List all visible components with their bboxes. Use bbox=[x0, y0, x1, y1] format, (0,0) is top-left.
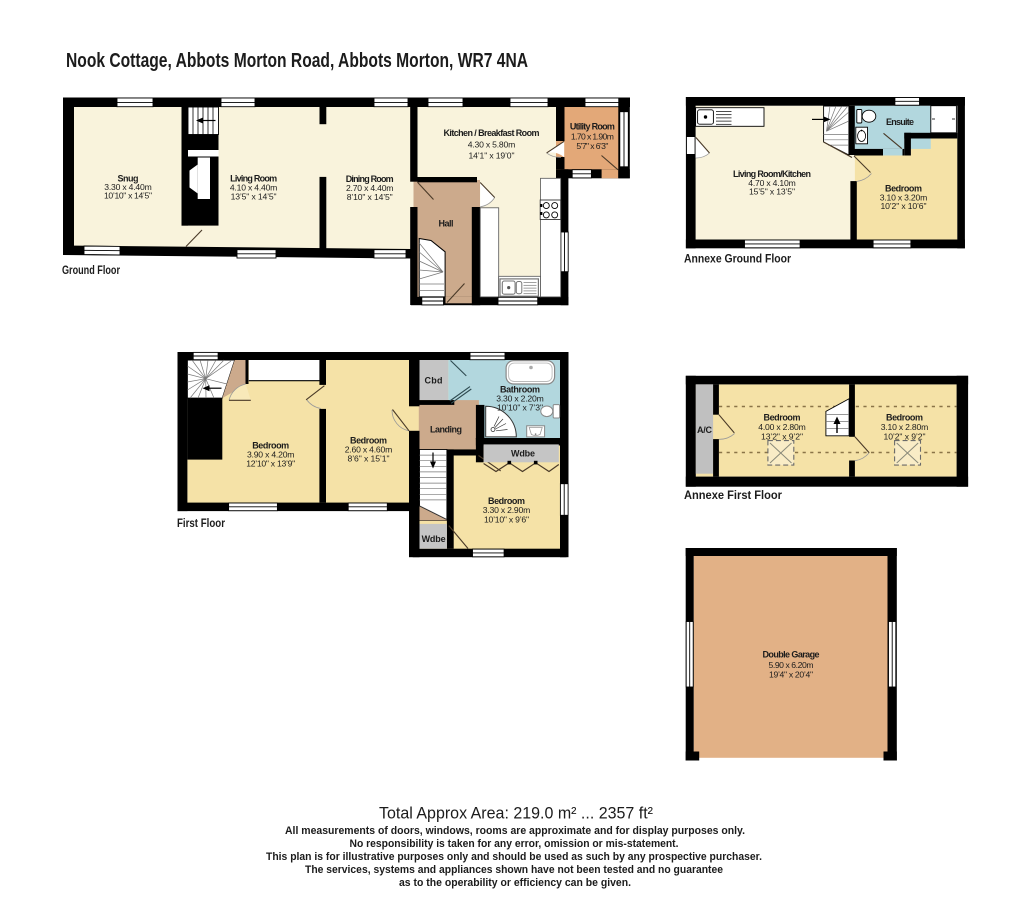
svg-text:19’4" x 20’4": 19’4" x 20’4" bbox=[769, 669, 813, 679]
svg-text:Cbd: Cbd bbox=[425, 376, 443, 386]
svg-text:3.10 x 2.80m: 3.10 x 2.80m bbox=[881, 422, 929, 432]
svg-text:10’2" x 10’6": 10’2" x 10’6" bbox=[881, 201, 927, 211]
svg-text:1.70 x 1.90m: 1.70 x 1.90m bbox=[571, 131, 614, 141]
svg-text:8’10" x 14’5": 8’10" x 14’5" bbox=[347, 192, 393, 202]
svg-text:8’6" x 15’1": 8’6" x 15’1" bbox=[348, 454, 390, 464]
svg-text:Wdbe: Wdbe bbox=[511, 448, 535, 458]
svg-text:Landing: Landing bbox=[430, 424, 462, 434]
svg-text:Ensuite: Ensuite bbox=[886, 117, 914, 127]
svg-text:15’5" x 13’5": 15’5" x 13’5" bbox=[749, 187, 795, 197]
svg-text:5’7" x 6’3": 5’7" x 6’3" bbox=[576, 141, 608, 151]
svg-text:The services, systems and appl: The services, systems and appliances sho… bbox=[305, 864, 723, 876]
svg-text:4.30 x 5.80m: 4.30 x 5.80m bbox=[468, 140, 516, 150]
svg-text:13’2" x 9’2": 13’2" x 9’2" bbox=[761, 432, 803, 442]
svg-text:as to the operability or effic: as to the operability or efficiency can … bbox=[399, 877, 631, 889]
svg-text:Hall: Hall bbox=[439, 219, 454, 229]
svg-text:10’10" x 9’6": 10’10" x 9’6" bbox=[484, 514, 529, 524]
svg-text:Ground Floor: Ground Floor bbox=[62, 265, 120, 277]
svg-text:10’10" x 14’5": 10’10" x 14’5" bbox=[104, 190, 152, 200]
svg-text:Utility Room: Utility Room bbox=[570, 122, 615, 132]
svg-text:Kitchen / Breakfast Room: Kitchen / Breakfast Room bbox=[444, 128, 540, 138]
svg-text:13’5" x 14’5": 13’5" x 14’5" bbox=[231, 192, 277, 202]
svg-text:Total Approx Area: 219.0 m² ..: Total Approx Area: 219.0 m² ... 2357 ft² bbox=[379, 804, 653, 823]
svg-text:Bedroom: Bedroom bbox=[764, 412, 801, 422]
svg-text:This plan is for illustrative: This plan is for illustrative purposes o… bbox=[266, 851, 762, 863]
svg-text:Bedroom: Bedroom bbox=[886, 412, 923, 422]
svg-text:A/C: A/C bbox=[697, 425, 713, 435]
svg-text:All measurements of doors, win: All measurements of doors, windows, room… bbox=[285, 825, 745, 837]
svg-text:Annexe First Floor: Annexe First Floor bbox=[684, 490, 782, 502]
svg-text:Wdbe: Wdbe bbox=[422, 534, 446, 544]
svg-text:14’1" x 19’0": 14’1" x 19’0" bbox=[469, 151, 515, 161]
svg-text:10’10" x 7’3": 10’10" x 7’3" bbox=[497, 402, 543, 412]
svg-text:Double Garage: Double Garage bbox=[763, 649, 820, 659]
svg-text:Annexe Ground Floor: Annexe Ground Floor bbox=[684, 254, 791, 266]
svg-text:No responsibility is taken for: No responsibility is taken for any error… bbox=[350, 838, 679, 850]
svg-text:12’10" x 13’9": 12’10" x 13’9" bbox=[246, 459, 295, 469]
svg-text:Nook Cottage, Abbots Morton Ro: Nook Cottage, Abbots Morton Road, Abbots… bbox=[66, 50, 528, 72]
svg-text:4.00 x 2.80m: 4.00 x 2.80m bbox=[758, 422, 806, 432]
svg-text:10’2" x 9’2": 10’2" x 9’2" bbox=[884, 432, 926, 442]
svg-text:First Floor: First Floor bbox=[177, 518, 225, 530]
